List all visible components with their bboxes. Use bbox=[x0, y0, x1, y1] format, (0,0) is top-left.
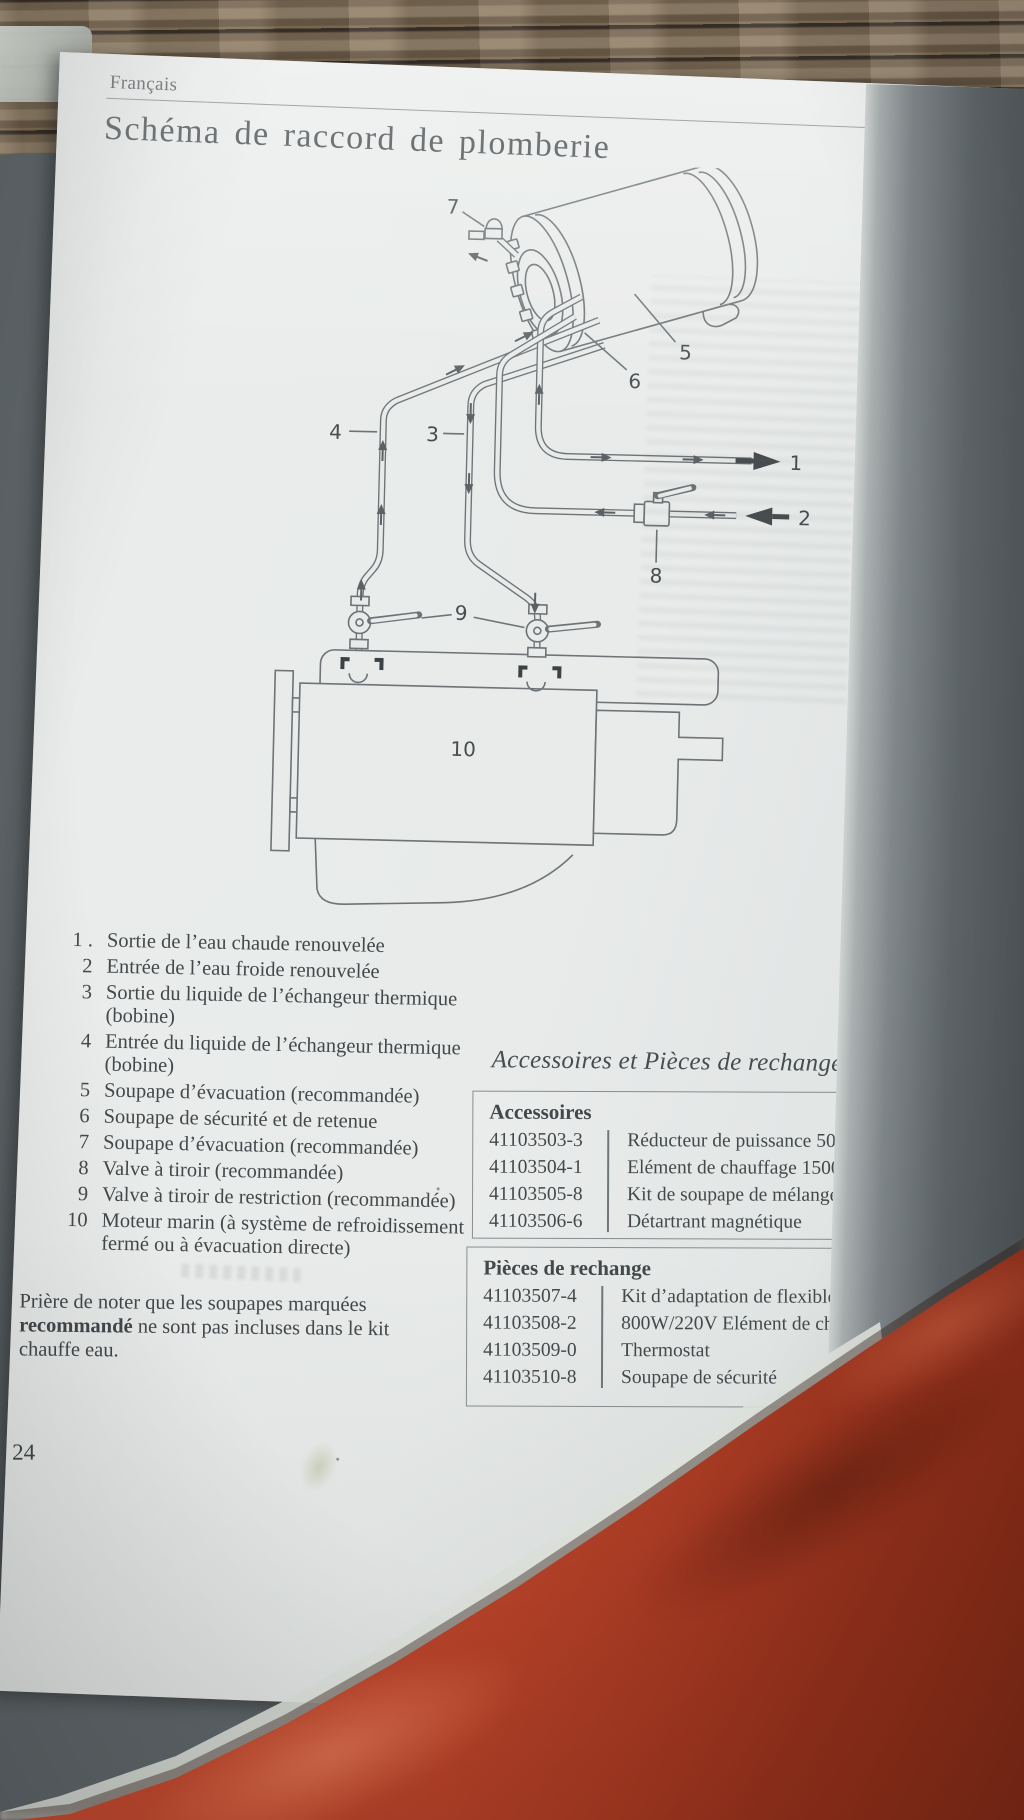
diagram-label-10: 10 bbox=[450, 737, 476, 762]
gearbox bbox=[593, 710, 723, 836]
leader-9a bbox=[422, 614, 452, 619]
diagram-label-3: 3 bbox=[426, 422, 439, 446]
diagram-label-6: 6 bbox=[628, 369, 641, 393]
speck bbox=[437, 1187, 440, 1190]
diagram-label-9: 9 bbox=[454, 601, 467, 625]
ink-smudge bbox=[181, 1264, 301, 1283]
engine-front-plate bbox=[271, 670, 293, 850]
page-stain bbox=[293, 1436, 344, 1497]
legend-item: 3Sortie du liquide de l’échangeur thermi… bbox=[51, 981, 492, 1035]
evacuation-valve-7 bbox=[469, 218, 518, 255]
restriction-valve-left bbox=[348, 596, 419, 650]
leader-3 bbox=[443, 433, 464, 434]
engine-main-body bbox=[296, 683, 597, 845]
diagram-label-7: 7 bbox=[446, 194, 459, 218]
page-number: 24 bbox=[12, 1440, 35, 1466]
legend-list: 1 .Sortie de l’eau chaude renouvelée 2En… bbox=[47, 929, 493, 1266]
ink-bleedthrough bbox=[635, 275, 861, 713]
speck bbox=[336, 1458, 339, 1461]
photo-canvas: Français Schéma de raccord de plomberie bbox=[0, 0, 1024, 1820]
leader-7 bbox=[462, 212, 484, 227]
diagram-label-4: 4 bbox=[329, 420, 342, 444]
leader-4 bbox=[349, 431, 377, 432]
restriction-valve-right bbox=[526, 605, 598, 659]
note-paragraph: Prière de noter que les soupapes marquée… bbox=[19, 1289, 450, 1365]
leader-9b bbox=[473, 617, 524, 627]
legend-item: 10Moteur marin (à système de refroidisse… bbox=[47, 1209, 488, 1263]
legend-item: 4Entrée du liquide de l’échangeur thermi… bbox=[50, 1030, 491, 1084]
language-header: Français bbox=[109, 72, 177, 97]
parts-heading: Accessoires et Pièces de rechange bbox=[492, 1046, 843, 1078]
